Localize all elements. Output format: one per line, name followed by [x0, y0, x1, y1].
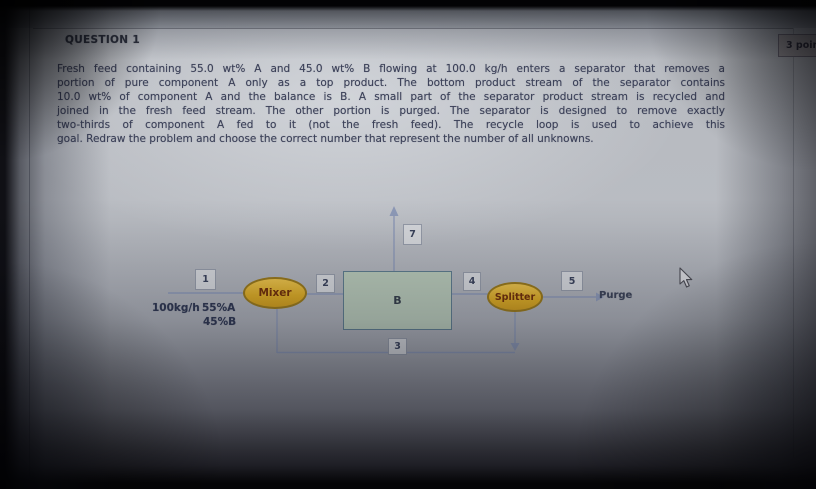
- question-text: Fresh feed containing 55.0 wt% A and 45.…: [57, 62, 725, 146]
- stream-3-label: 3: [388, 338, 407, 355]
- bottom-edge-artifact: [58, 481, 618, 486]
- points-badge: 3 points: [778, 34, 816, 57]
- separator-unit: B: [343, 271, 452, 330]
- question-text-line: joined in the fresh feed stream. The oth…: [57, 104, 725, 118]
- panel-left-edge: [29, 7, 30, 477]
- process-flow-diagram: B Mixer Splitter 1 2 7 4 5 3 100kg/h 55%…: [150, 195, 670, 370]
- feed-rate-label: 100kg/h: [152, 302, 200, 314]
- panel-top-divider: [33, 28, 793, 29]
- stream-1-label: 1: [195, 269, 216, 290]
- question-text-line: Fresh feed containing 55.0 wt% A and 45.…: [57, 62, 725, 76]
- recycle-arrowhead: [511, 343, 520, 351]
- question-text-line: portion of pure component A only as a to…: [57, 76, 725, 90]
- question-header: QUESTION 1: [65, 34, 140, 46]
- feed-composition-a-label: 55%A: [202, 302, 235, 314]
- splitter-unit: Splitter: [487, 282, 543, 312]
- stream-4-label: 4: [463, 272, 481, 291]
- mixer-unit: Mixer: [243, 277, 307, 309]
- purge-label: Purge: [599, 290, 632, 301]
- panel-right-edge: [793, 28, 794, 458]
- mouse-cursor-icon: [678, 267, 696, 290]
- question-text-line: 10.0 wt% of component A and the balance …: [57, 90, 725, 104]
- feed-composition-b-label: 45%B: [203, 316, 236, 328]
- stream-7-label: 7: [403, 224, 422, 245]
- stream-5-label: 5: [561, 271, 583, 291]
- photographed-screen: QUESTION 1 3 points Fresh feed containin…: [0, 0, 816, 489]
- question-text-line: two-thirds of component A fed to it (not…: [57, 118, 725, 132]
- page-top-band: [0, 7, 816, 28]
- question-text-line: goal. Redraw the problem and choose the …: [57, 132, 725, 146]
- stream-7-arrowhead: [390, 206, 399, 216]
- stream-2-label: 2: [316, 274, 335, 293]
